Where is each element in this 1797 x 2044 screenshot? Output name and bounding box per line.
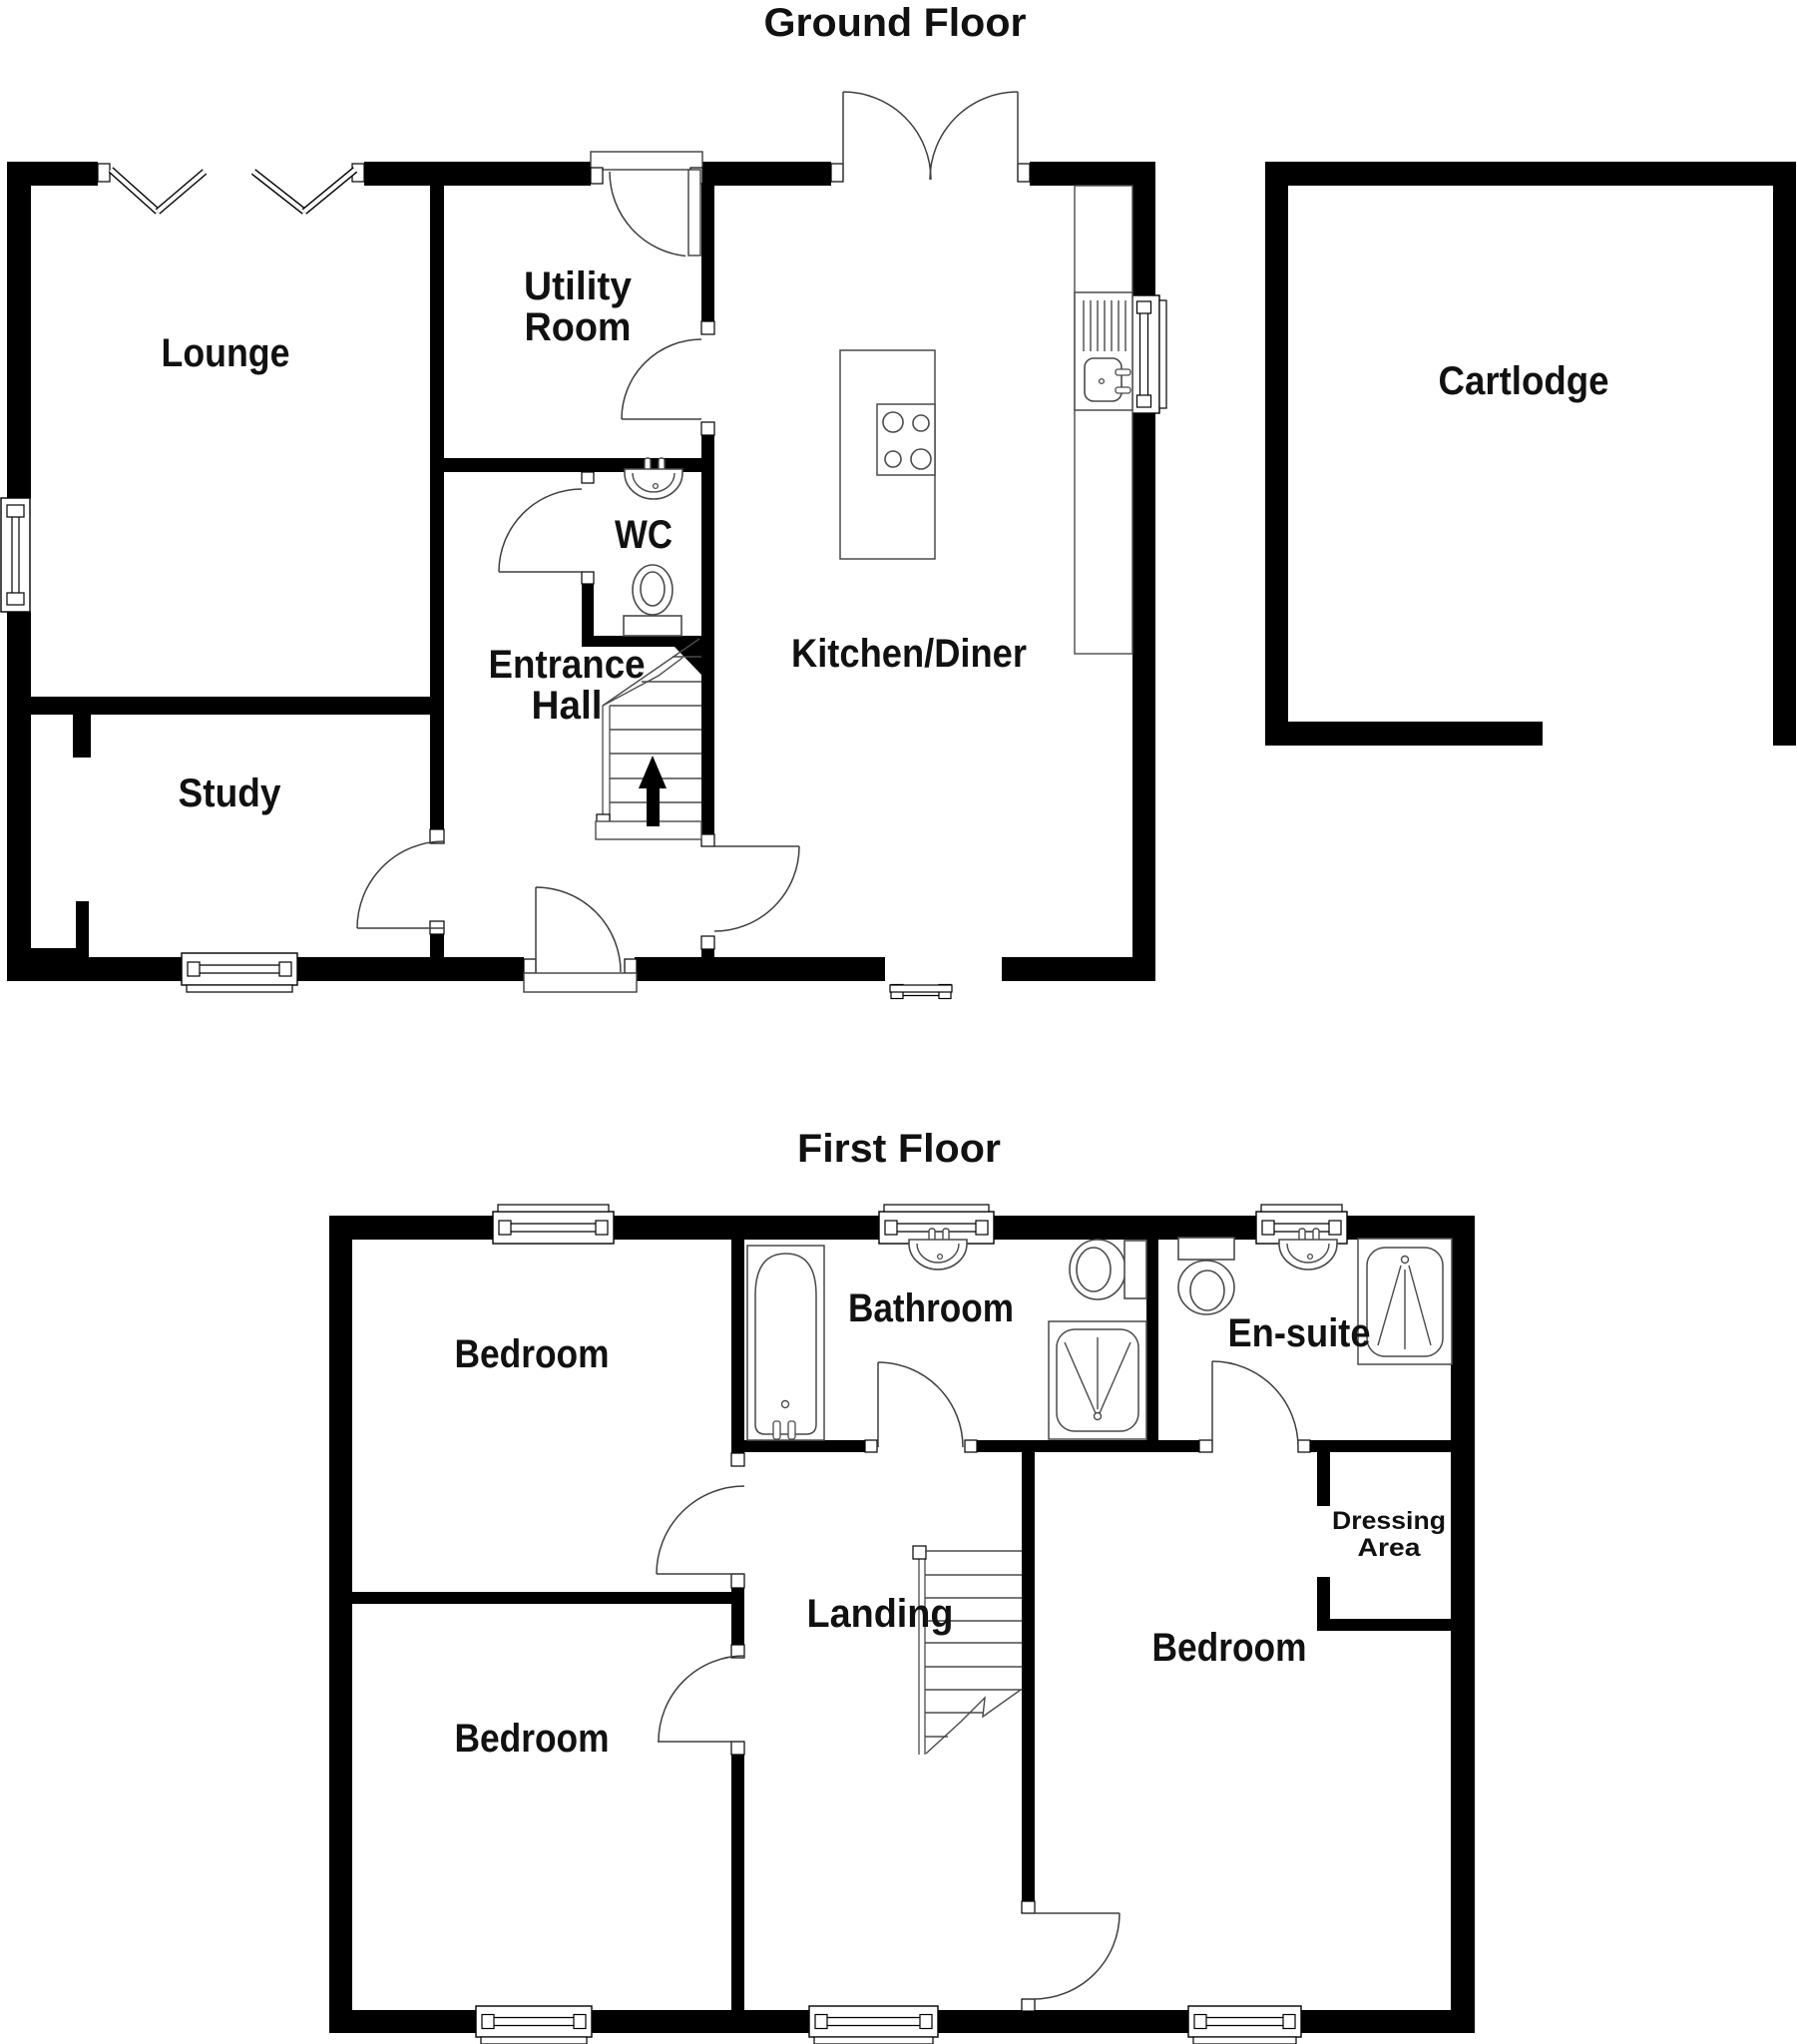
svg-text:Room: Room	[525, 305, 632, 349]
svg-text:Bedroom: Bedroom	[1152, 1626, 1307, 1670]
svg-text:Area: Area	[1358, 1534, 1422, 1562]
svg-text:Ground Floor: Ground Floor	[764, 1, 1027, 45]
svg-text:Utility: Utility	[524, 264, 633, 308]
svg-text:Bedroom: Bedroom	[455, 1332, 610, 1376]
svg-text:En-suite: En-suite	[1228, 1311, 1371, 1355]
svg-text:Landing: Landing	[807, 1592, 954, 1636]
svg-text:Cartlodge: Cartlodge	[1439, 359, 1609, 403]
svg-text:Dressing: Dressing	[1332, 1507, 1446, 1535]
svg-text:Hall: Hall	[532, 684, 603, 728]
svg-text:Bedroom: Bedroom	[455, 1717, 610, 1761]
svg-text:Bathroom: Bathroom	[848, 1286, 1014, 1330]
svg-text:Entrance: Entrance	[489, 643, 646, 687]
svg-text:First Floor: First Floor	[797, 1127, 1001, 1171]
svg-text:Lounge: Lounge	[162, 331, 290, 375]
svg-text:Study: Study	[179, 771, 282, 815]
svg-text:WC: WC	[615, 513, 673, 557]
svg-text:Kitchen/Diner: Kitchen/Diner	[791, 632, 1027, 676]
